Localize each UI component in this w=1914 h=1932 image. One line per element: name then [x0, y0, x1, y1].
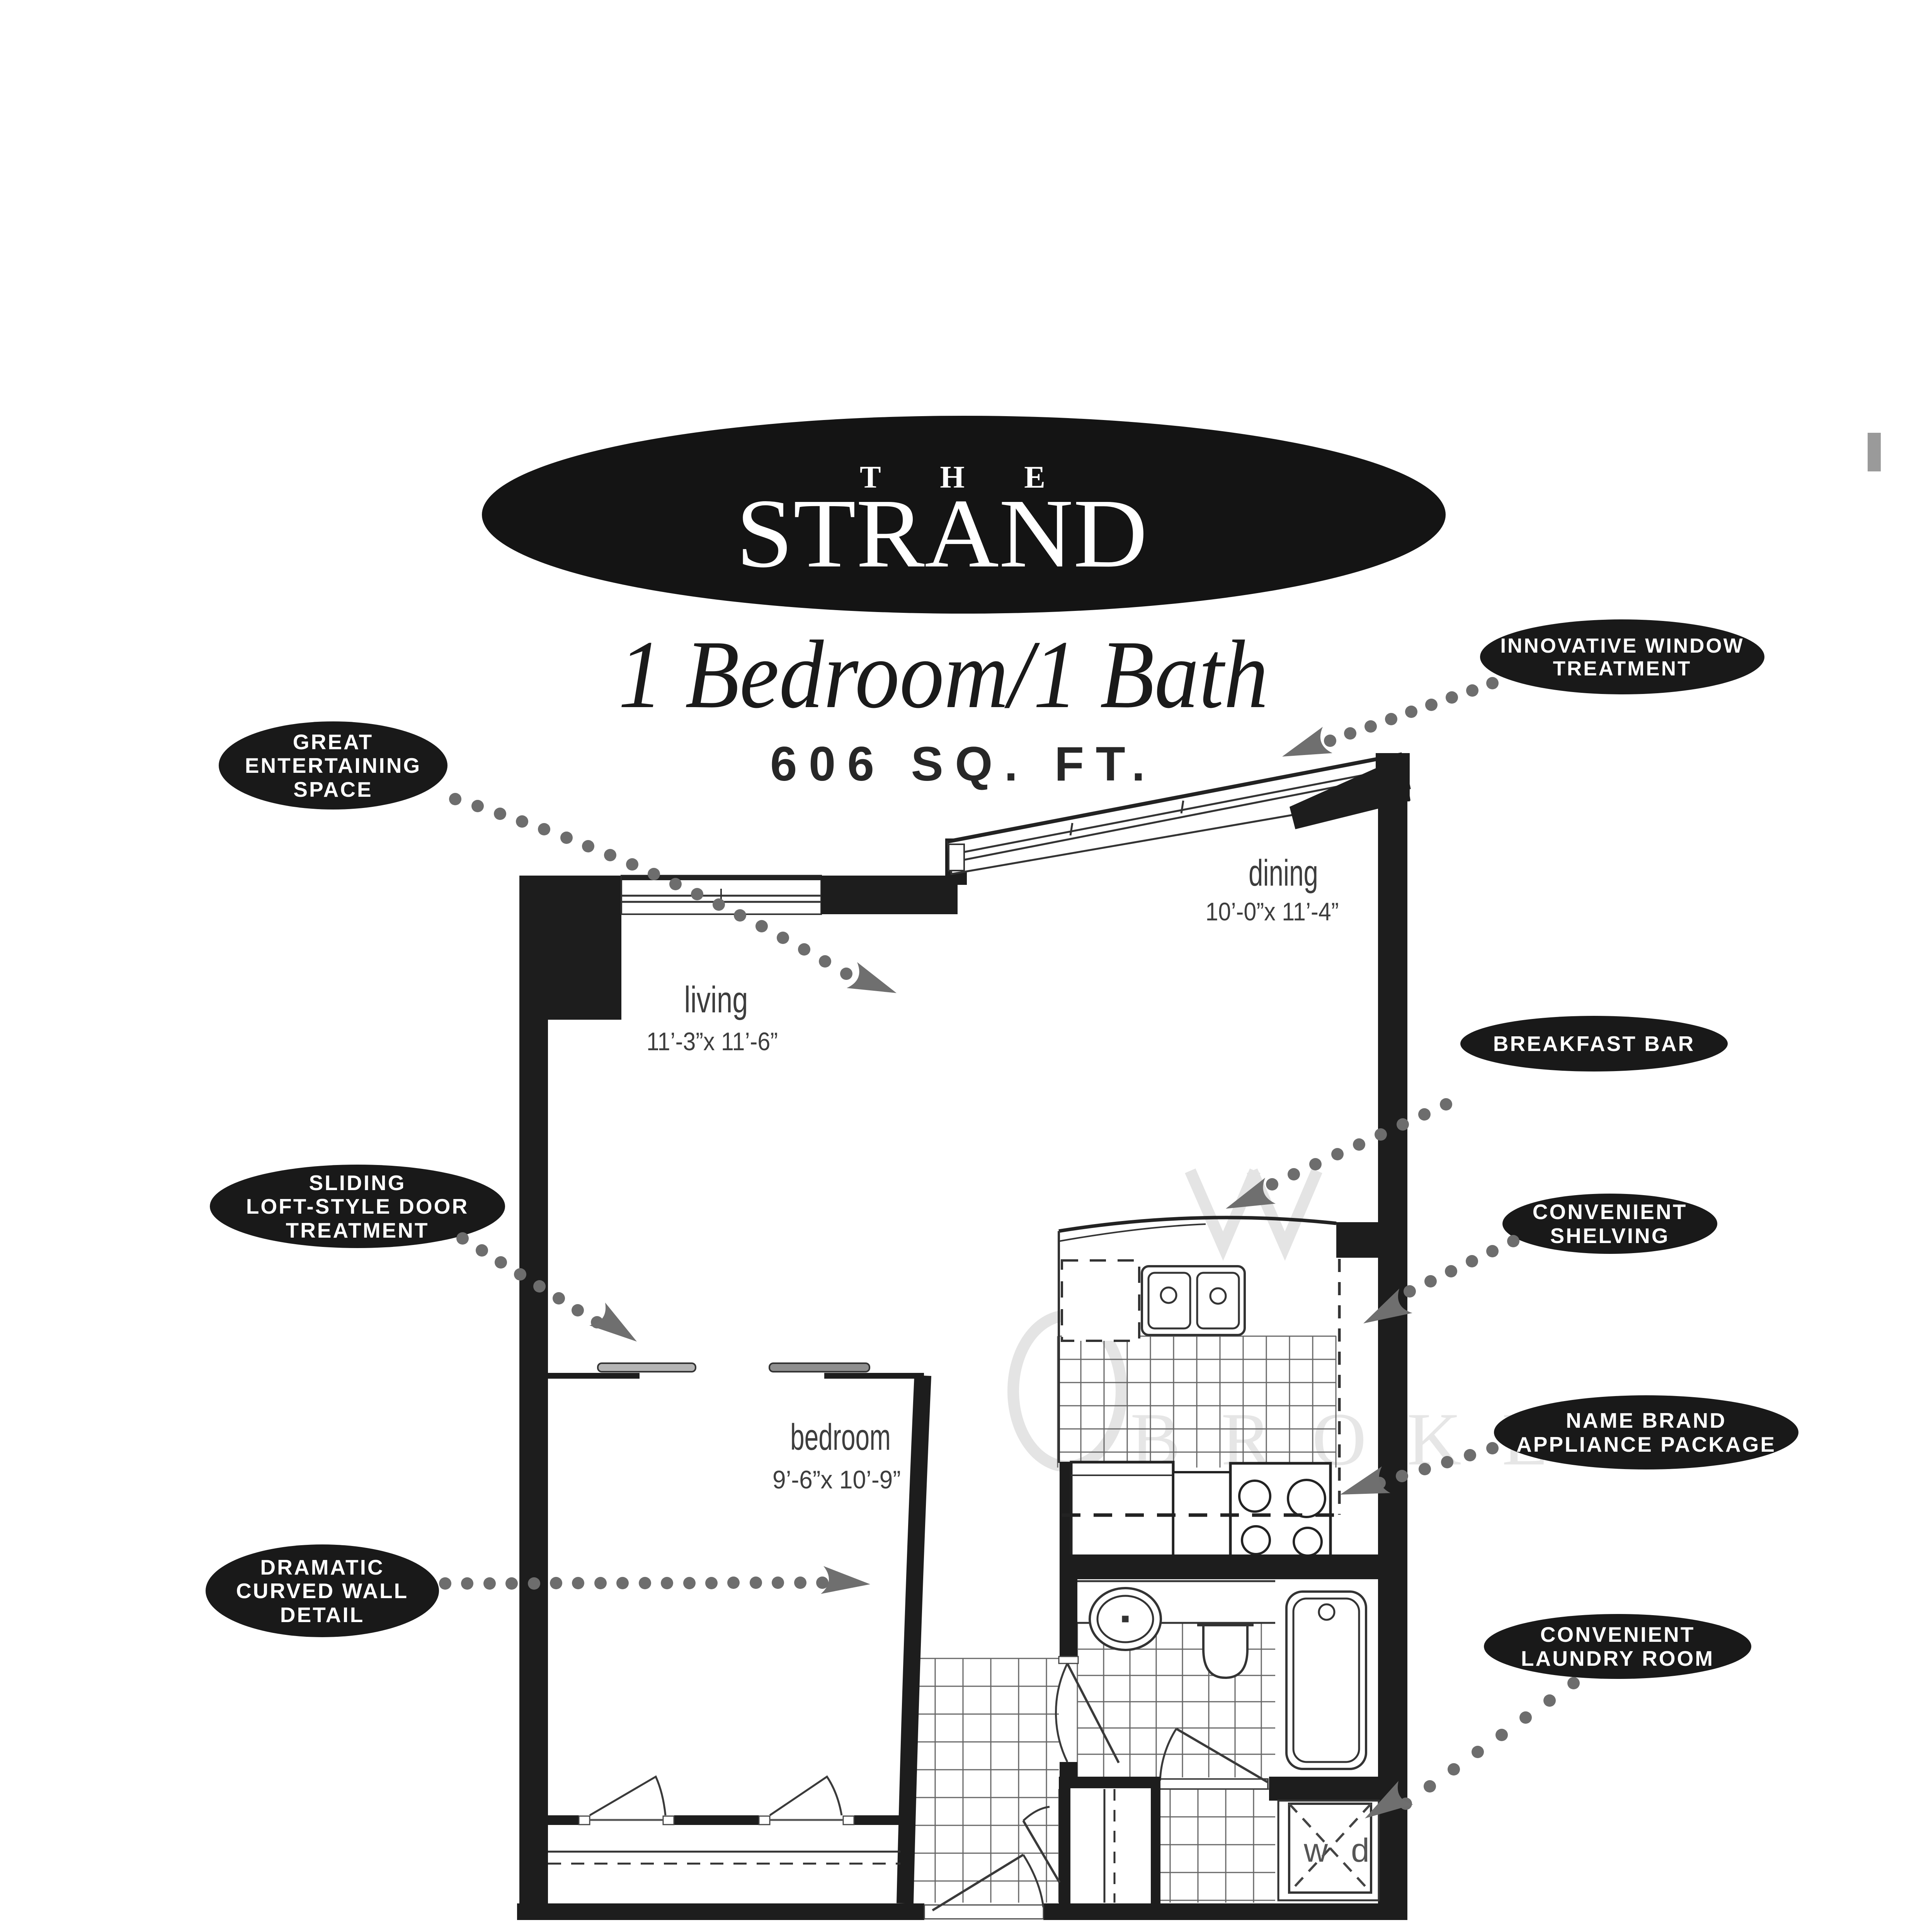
- svg-text:1 Bedroom/1 Bath: 1 Bedroom/1 Bath: [618, 620, 1268, 728]
- svg-text:TREATMENT: TREATMENT: [1553, 657, 1692, 680]
- svg-text:INNOVATIVE WINDOW: INNOVATIVE WINDOW: [1500, 634, 1744, 657]
- svg-text:d: d: [1351, 1832, 1370, 1869]
- svg-text:LAUNDRY ROOM: LAUNDRY ROOM: [1521, 1646, 1714, 1670]
- svg-text:CONVENIENT: CONVENIENT: [1540, 1622, 1695, 1646]
- svg-text:TREATMENT: TREATMENT: [286, 1218, 429, 1242]
- svg-text:CURVED WALL: CURVED WALL: [236, 1579, 408, 1603]
- svg-text:11’-3”x 11’-6”: 11’-3”x 11’-6”: [647, 1027, 778, 1056]
- svg-text:living: living: [684, 979, 748, 1020]
- svg-text:SPACE: SPACE: [293, 777, 373, 801]
- svg-text:w: w: [1303, 1832, 1328, 1869]
- svg-text:NAME BRAND: NAME BRAND: [1566, 1408, 1727, 1432]
- svg-text:10’-0”x 11’-4”: 10’-0”x 11’-4”: [1206, 897, 1339, 926]
- svg-text:bedroom: bedroom: [790, 1417, 891, 1458]
- svg-text:DRAMATIC: DRAMATIC: [260, 1555, 384, 1579]
- svg-text:LOFT-STYLE DOOR: LOFT-STYLE DOOR: [246, 1194, 469, 1218]
- svg-text:GREAT: GREAT: [293, 730, 373, 754]
- svg-text:STRAND: STRAND: [736, 479, 1148, 588]
- svg-text:dining: dining: [1249, 852, 1318, 894]
- svg-text:BREAKFAST BAR: BREAKFAST BAR: [1493, 1032, 1695, 1056]
- svg-text:DETAIL: DETAIL: [280, 1603, 365, 1627]
- svg-text:CONVENIENT: CONVENIENT: [1533, 1200, 1688, 1224]
- svg-text:APPLIANCE PACKAGE: APPLIANCE PACKAGE: [1516, 1432, 1776, 1456]
- svg-text:SLIDING: SLIDING: [309, 1171, 406, 1195]
- svg-text:SHELVING: SHELVING: [1550, 1224, 1669, 1248]
- svg-text:9’-6”x 10’-9”: 9’-6”x 10’-9”: [772, 1465, 901, 1494]
- svg-text:ENTERTAINING: ENTERTAINING: [245, 753, 421, 777]
